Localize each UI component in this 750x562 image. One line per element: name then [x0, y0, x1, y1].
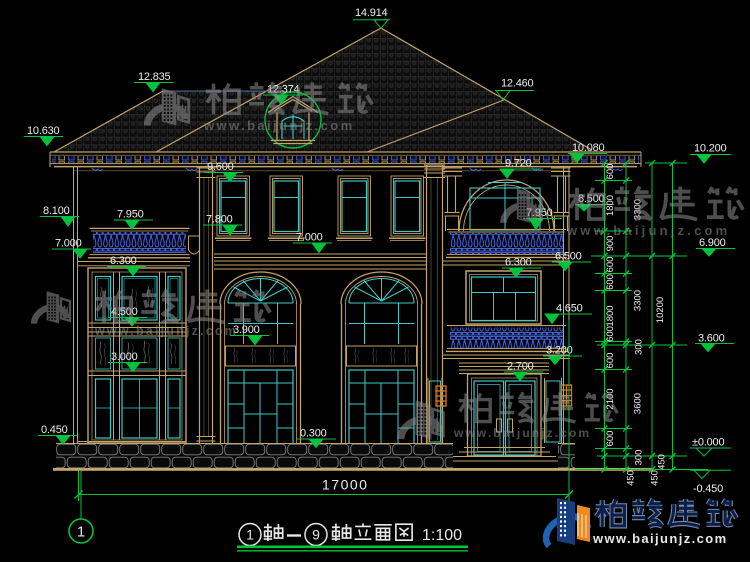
svg-text:600: 600	[605, 274, 616, 290]
svg-text:www.baijunjz.com: www.baijunjz.com	[592, 531, 728, 546]
svg-text:14.914: 14.914	[355, 7, 388, 19]
svg-text:1: 1	[77, 524, 85, 541]
svg-text:2.700: 2.700	[507, 361, 534, 373]
svg-text:1:100: 1:100	[422, 527, 462, 544]
svg-text:9.720: 9.720	[505, 158, 532, 170]
svg-text:300: 300	[634, 450, 645, 466]
svg-text:1: 1	[246, 527, 254, 543]
svg-text:600: 600	[605, 353, 616, 369]
svg-text:450: 450	[657, 454, 668, 470]
svg-text:www.baijunjz.com: www.baijunjz.com	[203, 118, 355, 133]
svg-text:-0.450: -0.450	[693, 483, 723, 495]
svg-text:17000: 17000	[322, 477, 368, 493]
svg-text:www.baijunjz.com: www.baijunjz.com	[453, 426, 591, 440]
svg-text:1800: 1800	[605, 305, 616, 326]
svg-text:0.450: 0.450	[41, 424, 68, 436]
svg-text:10.200: 10.200	[694, 143, 727, 155]
svg-text:7.000: 7.000	[55, 238, 82, 250]
svg-text:8.100: 8.100	[43, 205, 70, 217]
svg-text:6.500: 6.500	[555, 251, 582, 263]
svg-text:6.300: 6.300	[110, 255, 137, 267]
svg-text:600: 600	[605, 164, 616, 180]
svg-text:6.300: 6.300	[505, 257, 532, 269]
svg-text:7.000: 7.000	[296, 232, 323, 244]
svg-text:12.460: 12.460	[501, 78, 534, 90]
svg-text:450: 450	[626, 470, 637, 486]
svg-text:10200: 10200	[655, 297, 666, 323]
svg-text:0.300: 0.300	[300, 428, 327, 440]
svg-text:±0.000: ±0.000	[692, 437, 724, 449]
svg-text:600: 600	[605, 257, 616, 273]
svg-text:600: 600	[605, 326, 616, 342]
svg-text:www.baijunjz.com: www.baijunjz.com	[566, 223, 730, 238]
svg-text:7.800: 7.800	[206, 214, 233, 226]
svg-text:4.650: 4.650	[556, 303, 583, 315]
svg-text:10.630: 10.630	[27, 125, 60, 137]
svg-text:6.900: 6.900	[699, 237, 726, 249]
svg-text:600: 600	[605, 431, 616, 447]
svg-text:3.600: 3.600	[698, 333, 725, 345]
svg-text:300: 300	[634, 339, 645, 355]
svg-text:450: 450	[650, 470, 661, 486]
svg-text:1800: 1800	[605, 195, 616, 216]
svg-text:12.835: 12.835	[138, 71, 171, 83]
svg-text:3600: 3600	[633, 393, 644, 414]
svg-text:9.600: 9.600	[207, 161, 234, 173]
svg-text:10.080: 10.080	[572, 142, 605, 154]
svg-text:3300: 3300	[633, 290, 644, 311]
svg-text:7.950: 7.950	[117, 209, 144, 221]
svg-text:9: 9	[312, 527, 320, 543]
svg-text:www.baijunjz.com: www.baijunjz.com	[94, 324, 238, 338]
svg-text:3.000: 3.000	[111, 351, 138, 363]
